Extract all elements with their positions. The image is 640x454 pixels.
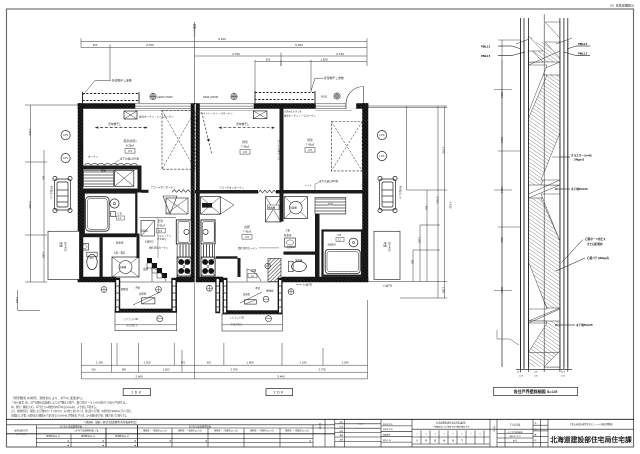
svg-text:2.730: 2.730 bbox=[319, 368, 326, 372]
svg-text:郵便受: 郵便受 bbox=[121, 287, 129, 291]
svg-text:食器棚: 食器棚 bbox=[268, 206, 276, 210]
svg-text:LPS: LPS bbox=[63, 156, 68, 160]
svg-text:〔3〕基準詳細図(1): 〔3〕基準詳細図(1) bbox=[608, 3, 634, 8]
svg-text:2.700: 2.700 bbox=[146, 43, 154, 47]
svg-text:910: 910 bbox=[207, 362, 212, 365]
svg-text:収納: 収納 bbox=[328, 202, 334, 206]
svg-text:グラスウールt=50: グラスウールt=50 bbox=[571, 153, 592, 157]
svg-text:遮光カーテン・レースカーテン: 遮光カーテン・レースカーテン bbox=[139, 115, 174, 119]
svg-text:1.960: 1.960 bbox=[42, 252, 45, 259]
svg-text:6.100: 6.100 bbox=[218, 37, 226, 41]
svg-text:物置: 物置 bbox=[59, 242, 63, 248]
svg-text:「(6)+寝室 (3)、2戸1間仕切変更により1戸数1 1住: 「(6)+寝室 (3)、2戸1間仕切変更により1戸数1 1住戸、取り替カーテン(… bbox=[11, 400, 128, 404]
svg-text:シナランバ30: シナランバ30 bbox=[229, 316, 244, 320]
svg-text:1.820: 1.820 bbox=[418, 237, 421, 244]
svg-text:7.45㎡: 7.45㎡ bbox=[241, 145, 249, 149]
svg-text:911.5: 911.5 bbox=[500, 187, 503, 193]
svg-text:5.460: 5.460 bbox=[436, 197, 440, 204]
svg-text:洗濯機: 洗濯機 bbox=[290, 206, 298, 210]
svg-text:木下地45×105: 木下地45×105 bbox=[576, 323, 593, 327]
svg-text:910: 910 bbox=[92, 369, 97, 372]
svg-text:4.5: 4.5 bbox=[245, 235, 249, 239]
svg-text:U B: U B bbox=[337, 234, 342, 237]
svg-text:1.900: 1.900 bbox=[15, 297, 18, 304]
svg-text:床下点検口600角: 床下点検口600角 bbox=[319, 179, 339, 183]
svg-text:1.1: 1.1 bbox=[118, 217, 122, 220]
svg-text:2.640: 2.640 bbox=[136, 374, 143, 378]
svg-text:PBt12.5: PBt12.5 bbox=[481, 45, 491, 49]
svg-text:7.45㎡: 7.45㎡ bbox=[243, 230, 251, 234]
svg-text:高窓受: 高窓受 bbox=[139, 292, 147, 296]
svg-text:910: 910 bbox=[42, 176, 45, 181]
svg-text:S-04: S-04 bbox=[358, 424, 363, 426]
svg-text:1.820: 1.820 bbox=[28, 129, 32, 136]
svg-text:脱衣室: 脱衣室 bbox=[116, 241, 124, 245]
svg-text:手摺900: 手摺900 bbox=[145, 240, 154, 244]
svg-text:間仕切用カーテン: 間仕切用カーテン bbox=[149, 246, 169, 250]
svg-text:石膏パテ (300g/㎡): 石膏パテ (300g/㎡) bbox=[587, 256, 609, 260]
svg-text:1.060: 1.060 bbox=[442, 287, 445, 294]
svg-text:1.820: 1.820 bbox=[320, 57, 328, 61]
svg-text:2.700: 2.700 bbox=[232, 52, 240, 56]
svg-text:N020 (VS0P): N020 (VS0P) bbox=[203, 95, 218, 99]
svg-text:収納: 収納 bbox=[101, 169, 107, 173]
svg-text:クロス仕上: クロス仕上 bbox=[126, 323, 139, 327]
svg-text:アコーデオンカーテン: アコーデオンカーテン bbox=[151, 185, 177, 189]
svg-text:(7.5-0P): (7.5-0P) bbox=[157, 238, 166, 241]
svg-text:1.1: 1.1 bbox=[338, 239, 342, 242]
svg-text:洗面器: 洗面器 bbox=[295, 258, 303, 262]
svg-text:手摺900: 手摺900 bbox=[327, 243, 336, 247]
svg-text:間仕切用カーテン: 間仕切用カーテン bbox=[238, 246, 258, 250]
svg-text:850: 850 bbox=[411, 260, 414, 265]
svg-text:(90×430): (90×430) bbox=[388, 242, 391, 251]
svg-text:より、(寝)間仕切り、取替により戸数(6)カーテン(6)つ(: より、(寝)間仕切り、取替により戸数(6)カーテン(6)つ(7)、よ(7)替り·… bbox=[11, 409, 133, 413]
svg-text:呼鈴: 呼鈴 bbox=[136, 286, 141, 290]
svg-text:上着: 上着 bbox=[285, 228, 290, 232]
svg-text:トイレ: トイレ bbox=[305, 184, 313, 187]
svg-text:室内物干し: 室内物干し bbox=[108, 122, 122, 126]
svg-text:玄関: 玄関 bbox=[143, 267, 149, 271]
svg-text:外部物干し金物: 外部物干し金物 bbox=[324, 76, 344, 80]
svg-text:PBt12.5: PBt12.5 bbox=[481, 54, 491, 58]
svg-text:冷蔵庫: 冷蔵庫 bbox=[202, 204, 210, 208]
svg-text:寝室: 寝室 bbox=[307, 138, 313, 142]
svg-text:2.700: 2.700 bbox=[231, 368, 238, 372]
svg-text:上着・電気: 上着・電気 bbox=[113, 251, 126, 255]
svg-text:2.730: 2.730 bbox=[336, 52, 344, 56]
svg-text:4.5: 4.5 bbox=[128, 149, 132, 153]
svg-text:LPS: LPS bbox=[380, 133, 385, 137]
svg-text:5.460: 5.460 bbox=[28, 202, 32, 209]
svg-text:北海道建設部住宅局住宅課: 北海道建設部住宅局住宅課 bbox=[550, 435, 632, 444]
svg-text:810: 810 bbox=[266, 57, 271, 61]
svg-text:24kg/m3: 24kg/m3 bbox=[574, 158, 585, 162]
svg-text:脱衣室: 脱衣室 bbox=[284, 233, 292, 237]
svg-text:木下地45×105: 木下地45×105 bbox=[571, 187, 588, 191]
svg-text:4.5: 4.5 bbox=[159, 229, 163, 233]
svg-text:1.820: 1.820 bbox=[247, 361, 254, 365]
svg-text:7.45㎡: 7.45㎡ bbox=[306, 143, 314, 147]
svg-text:1.145: 1.145 bbox=[96, 361, 103, 365]
svg-text:高窓受: 高窓受 bbox=[243, 292, 251, 296]
svg-text:界壁ライン: 界壁ライン bbox=[193, 24, 197, 37]
svg-text:WC: WC bbox=[90, 257, 94, 260]
svg-text:911.5: 911.5 bbox=[500, 237, 503, 243]
svg-text:911.5: 911.5 bbox=[500, 137, 503, 143]
svg-text:U B: U B bbox=[118, 213, 123, 216]
svg-text:洗濯機: 洗濯機 bbox=[119, 265, 127, 269]
svg-text:4.5: 4.5 bbox=[308, 148, 312, 152]
svg-text:2DK: 2DK bbox=[274, 391, 285, 395]
svg-text:LPS: LPS bbox=[63, 133, 68, 137]
svg-text:シナランバ30: シナランバ30 bbox=[123, 317, 138, 321]
svg-text:寝室: 寝室 bbox=[242, 140, 248, 144]
svg-text:N012: N012 bbox=[321, 94, 328, 98]
svg-text:石膏ボード用ビス: 石膏ボード用ビス bbox=[585, 237, 606, 241]
svg-text:1.620: 1.620 bbox=[144, 361, 151, 365]
svg-text:1.240: 1.240 bbox=[300, 361, 307, 365]
svg-text:または釘留め: または釘留め bbox=[587, 242, 603, 246]
svg-text:クロス仕上: クロス仕上 bbox=[230, 322, 243, 326]
svg-text:手摺900: 手摺900 bbox=[286, 245, 295, 249]
svg-text:910: 910 bbox=[93, 43, 98, 47]
svg-text:4.5: 4.5 bbox=[243, 150, 247, 154]
svg-text:洗面器: 洗面器 bbox=[141, 229, 149, 233]
svg-text:3-0b×ポウチャ8: 3-0b×ポウチャ8 bbox=[284, 109, 302, 113]
svg-text:675: 675 bbox=[181, 362, 186, 365]
svg-text:4.510: 4.510 bbox=[449, 202, 453, 209]
svg-text:1.750: 1.750 bbox=[442, 147, 446, 154]
svg-text:(6)、寝室・間取り(ズ)、1戸当たり+2間仕切(6)戸(6: (6)、寝室・間取り(ズ)、1戸当たり+2間仕切(6)戸(6)もの(4)+(6)… bbox=[11, 405, 98, 409]
svg-text:アコーデオンカーテン: アコーデオンカーテン bbox=[219, 185, 245, 189]
svg-text:5.460: 5.460 bbox=[295, 43, 303, 47]
svg-text:LPS: LPS bbox=[380, 154, 385, 158]
svg-text:物置: 物置 bbox=[383, 242, 387, 248]
svg-text:居室: 居室 bbox=[158, 219, 164, 223]
svg-text:各住戸界壁詳細図 S=1/5: 各住戸界壁詳細図 S=1/5 bbox=[513, 388, 558, 394]
svg-text:950: 950 bbox=[122, 369, 127, 372]
svg-text:7.45㎡: 7.45㎡ bbox=[157, 224, 165, 228]
svg-text:8.28㎡: 8.28㎡ bbox=[126, 144, 134, 148]
svg-text:1DK: 1DK bbox=[131, 391, 142, 395]
svg-text:居室(寝室): 居室(寝室) bbox=[123, 139, 136, 143]
svg-text:911.5: 911.5 bbox=[500, 287, 503, 293]
svg-text:L=届700: L=届700 bbox=[383, 283, 393, 287]
svg-text:PBt12.5: PBt12.5 bbox=[578, 51, 588, 55]
svg-text:郵便受: 郵便受 bbox=[266, 289, 274, 293]
svg-text:PBt12.5: PBt12.5 bbox=[578, 42, 588, 46]
svg-text:カーテン: カーテン bbox=[88, 155, 99, 159]
svg-text:ミニキッチン: ミニキッチン bbox=[157, 234, 172, 238]
svg-text:「寝室数等 (6)寝室、間仕切により、2戸1に変更あり。: 「寝室数等 (6)寝室、間仕切により、2戸1に変更あり。 bbox=[11, 396, 85, 400]
svg-text:(90×430): (90×430) bbox=[64, 242, 67, 251]
svg-text:911.5: 911.5 bbox=[500, 92, 503, 98]
svg-text:外部物干し金物: 外部物干し金物 bbox=[112, 79, 132, 83]
svg-text:1.240: 1.240 bbox=[342, 361, 349, 365]
svg-text:カーテンレール·レースカーテン: カーテンレール·レースカーテン bbox=[198, 111, 233, 115]
svg-text:遮光カーテン·レースカーテン: 遮光カーテン·レースカーテン bbox=[284, 114, 316, 118]
svg-text:呼鈴: 呼鈴 bbox=[255, 286, 260, 290]
svg-text:床下点検口600角: 床下点検口600角 bbox=[120, 156, 140, 160]
svg-text:5.460: 5.460 bbox=[278, 374, 285, 378]
svg-text:台所: 台所 bbox=[244, 225, 250, 229]
svg-text:1.620: 1.620 bbox=[163, 368, 170, 372]
svg-text:(6)間取りに2戸数、(6)間仕切りの数替あり? 取り替 (: (6)間取りに2戸数、(6)間仕切りの数替あり? 取り替 (1)+(2)+(4)… bbox=[11, 414, 128, 418]
svg-text:L=届700: L=届700 bbox=[303, 283, 313, 287]
svg-text:910: 910 bbox=[425, 206, 428, 211]
svg-text:室内物干し: 室内物干し bbox=[236, 122, 250, 126]
svg-text:N020 (VS0P): N020 (VS0P) bbox=[158, 95, 173, 99]
